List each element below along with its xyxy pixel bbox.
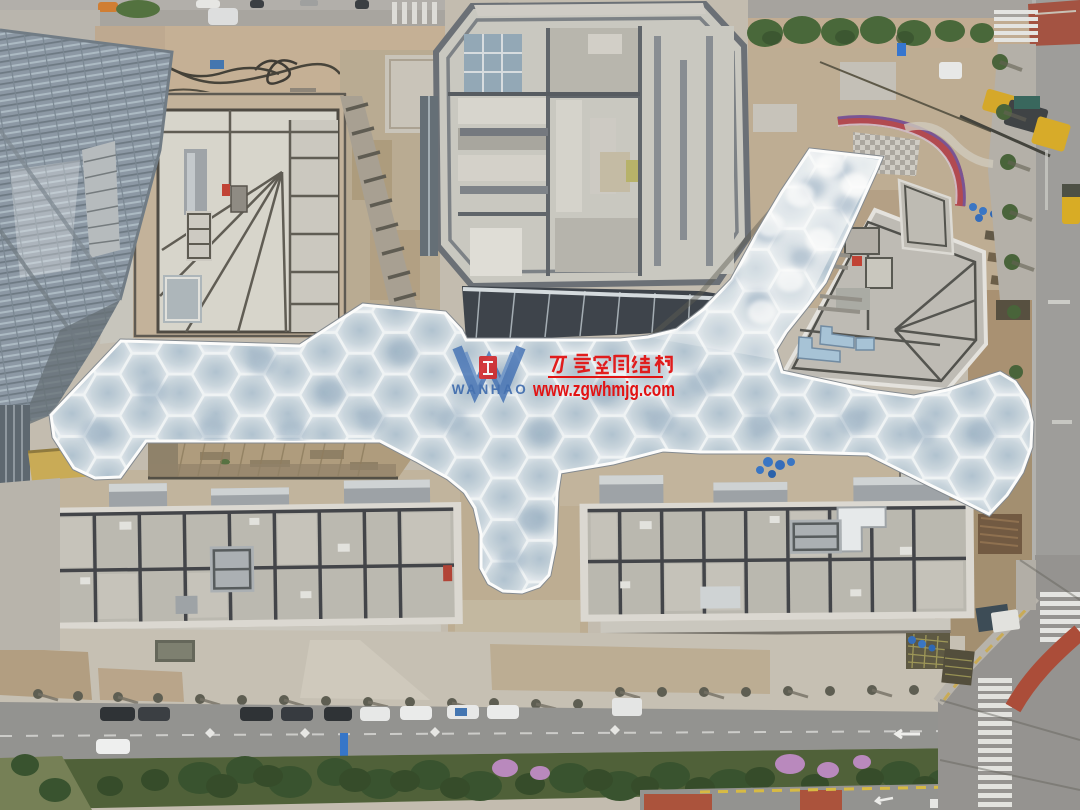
svg-text:WANHAO: WANHAO [452,382,529,397]
svg-text:www.zgwhmjg.com: www.zgwhmjg.com [532,379,675,401]
